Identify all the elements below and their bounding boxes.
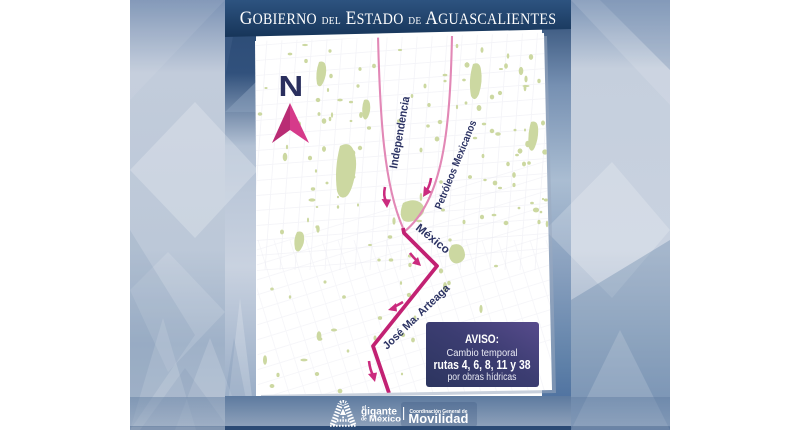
svg-text:de: de [361,417,367,423]
svg-text:rutas 4, 6, 8, 11 y 38: rutas 4, 6, 8, 11 y 38 [434,358,531,372]
svg-text:México: México [369,414,401,424]
svg-text:N: N [279,69,304,102]
svg-text:AVISO:: AVISO: [465,334,499,346]
svg-text:por obras hídricas: por obras hídricas [448,372,517,383]
svg-text:Movilidad: Movilidad [408,411,468,426]
